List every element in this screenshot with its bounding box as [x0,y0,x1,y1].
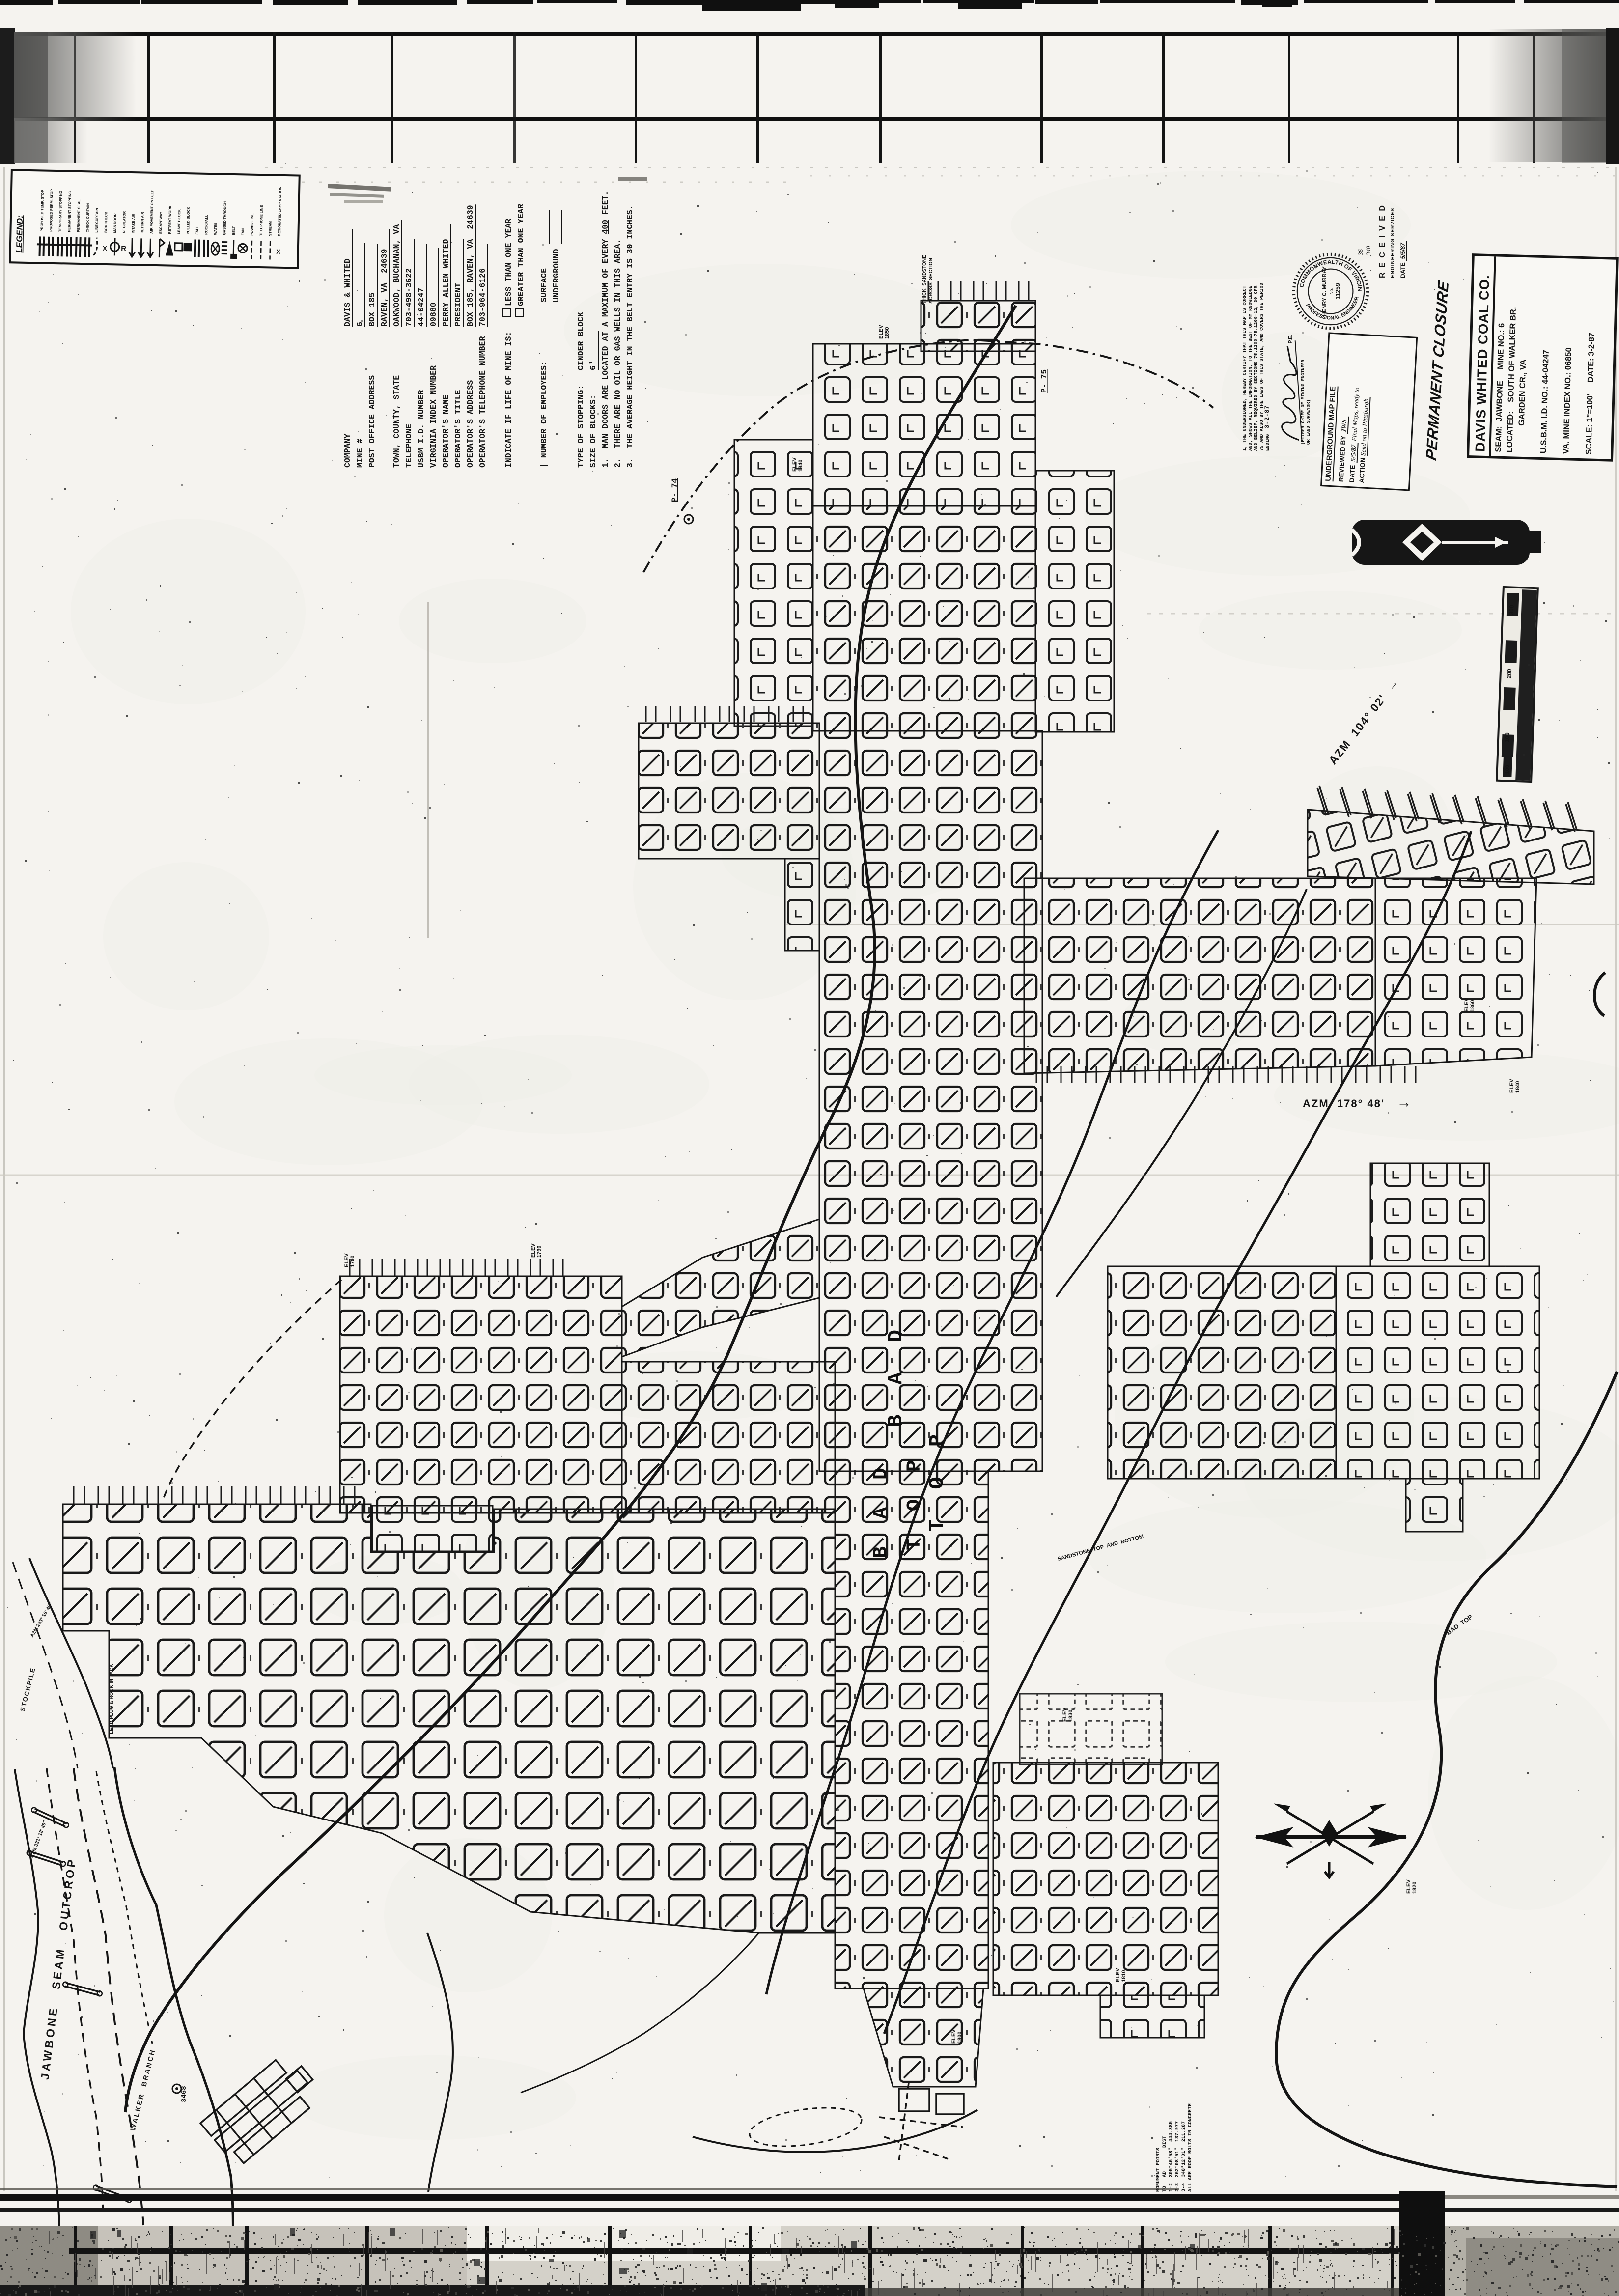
svg-text:LEAVE BLOCK: LEAVE BLOCK [176,209,181,234]
svg-text:TELEPHONE LINE: TELEPHONE LINE [259,205,264,236]
svg-text:WATER: WATER [213,222,218,235]
svg-text:BELT: BELT [231,226,236,235]
svg-text:PROPOSED PERM. STOP: PROPOSED PERM. STOP [49,189,54,232]
svg-text:PROPOSED TEMP. STOP: PROPOSED TEMP. STOP [39,190,45,232]
svg-text:R: R [121,245,126,253]
svg-text:ROCK FALL: ROCK FALL [204,214,209,235]
svg-text:RETREAT WORK: RETREAT WORK [167,205,172,234]
svg-text:FALL: FALL [195,225,199,235]
svg-text:HENRY C. MURRAY: HENRY C. MURRAY [1321,266,1327,316]
svg-text:GASSED THROUGH: GASSED THROUGH [222,201,227,235]
svg-text:POWER LINE: POWER LINE [250,213,254,236]
svg-text:P- 75: P- 75 [1040,369,1049,393]
svg-text:11259: 11259 [1334,283,1341,300]
svg-text:X: X [276,248,280,255]
svg-text:INTAKE AIR: INTAKE AIR [131,213,136,233]
svg-text:REGULATOR: REGULATOR [122,211,127,233]
svg-text:TEMPORARY STOPPING: TEMPORARY STOPPING [58,190,63,232]
svg-text:PERMANENT STOPPING: PERMANENT STOPPING [67,191,72,232]
svg-text:STREAM: STREAM [268,221,273,236]
svg-text:300: 300 [1508,605,1515,615]
svg-text:BOX CHECK: BOX CHECK [104,211,109,233]
svg-text:CHECK CURTAIN: CHECK CURTAIN [85,203,90,233]
svg-text:100: 100 [1505,765,1511,774]
svg-text:No.: No. [1329,288,1334,295]
svg-text:ESCAPEWAY: ESCAPEWAY [158,212,163,234]
svg-text:AIR MOVEMENT ON BELT: AIR MOVEMENT ON BELT [149,190,155,234]
svg-text:PULLED BLOCK: PULLED BLOCK [186,206,191,234]
svg-text:100: 100 [1504,732,1511,743]
svg-text:P.E.: P.E. [1287,334,1293,343]
svg-text:LINE CURTAIN: LINE CURTAIN [94,208,99,232]
svg-text:LEGEND:: LEGEND: [15,215,25,253]
svg-text:P- 74: P- 74 [670,478,679,502]
svg-text:PERMANENT SEAL: PERMANENT SEAL [76,199,81,232]
svg-text:FAN: FAN [241,228,245,236]
svg-text:200: 200 [1506,669,1513,679]
svg-text:RETURN AIR: RETURN AIR [140,211,145,233]
svg-text:3468: 3468 [180,2086,188,2102]
svg-text:MAN DOOR: MAN DOOR [112,213,117,233]
svg-text:X: X [103,245,107,252]
